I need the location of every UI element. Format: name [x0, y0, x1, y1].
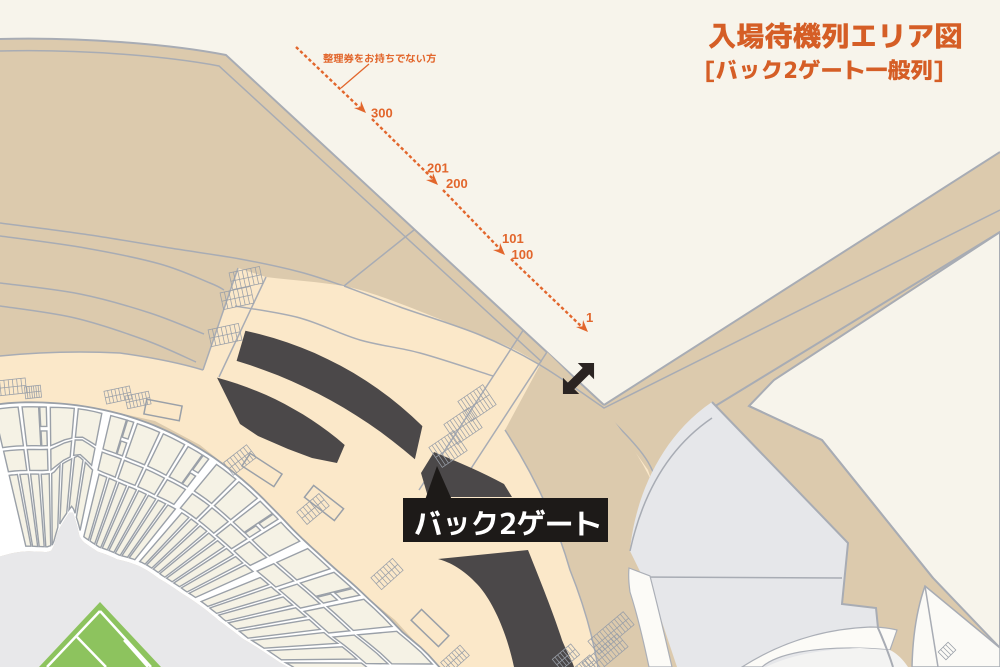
svg-text:201: 201	[427, 161, 449, 176]
svg-text:101: 101	[502, 231, 524, 246]
svg-text:300: 300	[371, 106, 393, 121]
svg-text:200: 200	[446, 176, 468, 191]
svg-text:100: 100	[512, 247, 534, 262]
svg-text:1: 1	[586, 310, 593, 325]
